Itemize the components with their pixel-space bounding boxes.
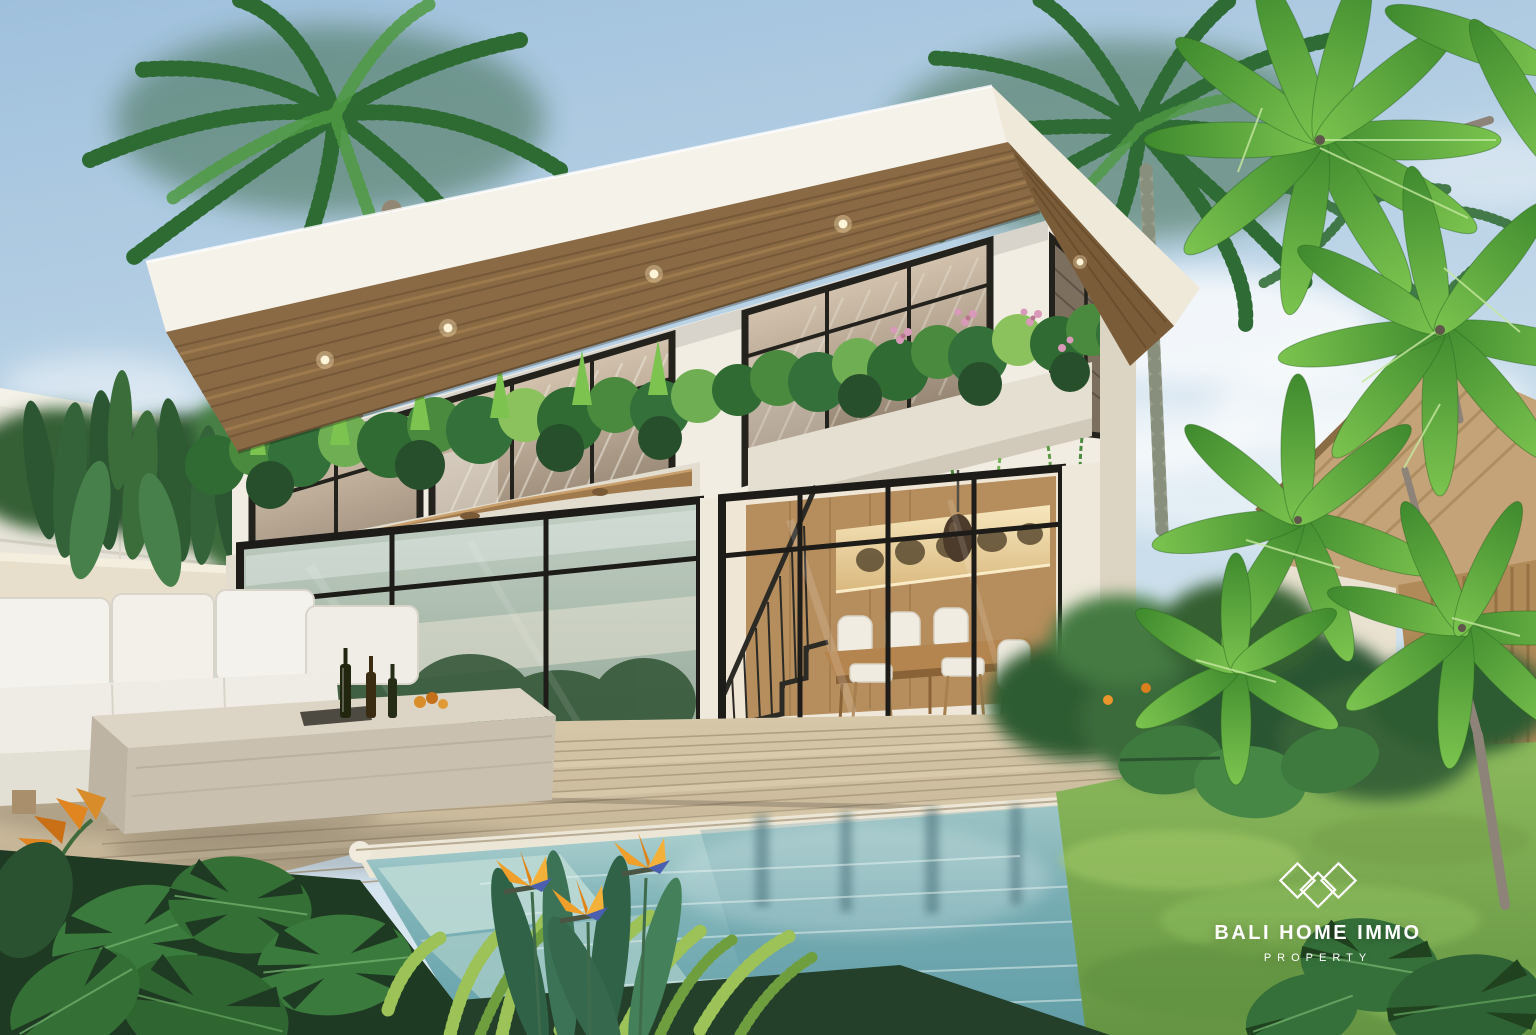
watermark: BALI HOME IMMO PROPERTY <box>1188 860 1448 964</box>
three-diamonds-icon <box>1274 860 1362 914</box>
brand-name: BALI HOME IMMO <box>1188 922 1448 945</box>
villa-exterior-render: BALI HOME IMMO PROPERTY <box>0 0 1536 1035</box>
brand-tagline: PROPERTY <box>1188 952 1448 964</box>
